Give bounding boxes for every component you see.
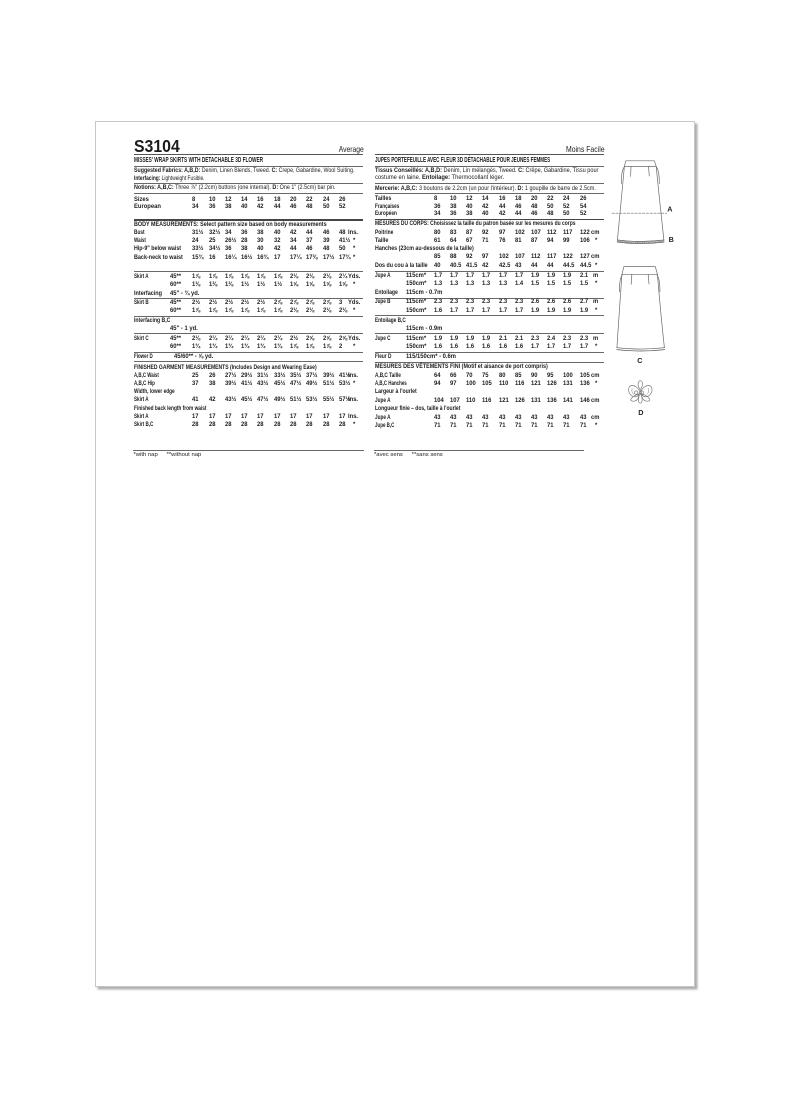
svg-text:D: D — [638, 408, 643, 417]
svg-text:A: A — [667, 204, 672, 213]
svg-text:C: C — [637, 356, 642, 365]
svg-text:B: B — [669, 235, 674, 244]
